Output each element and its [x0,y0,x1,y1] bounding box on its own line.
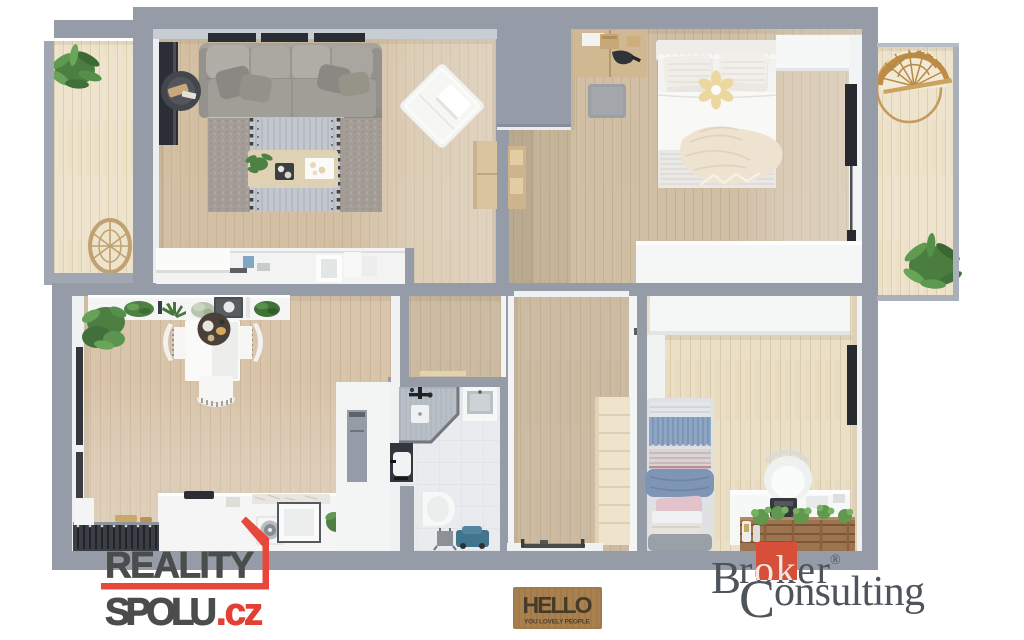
svg-text:SPOLU: SPOLU [105,592,217,634]
svg-text:.cz: .cz [216,592,263,634]
svg-text:HELLO: HELLO [523,592,593,618]
svg-text:YOU LOVELY PEOPLE: YOU LOVELY PEOPLE [524,619,591,626]
svg-text:®: ® [830,553,841,568]
svg-text:REALITY: REALITY [105,545,254,586]
svg-text:B: B [711,553,741,603]
